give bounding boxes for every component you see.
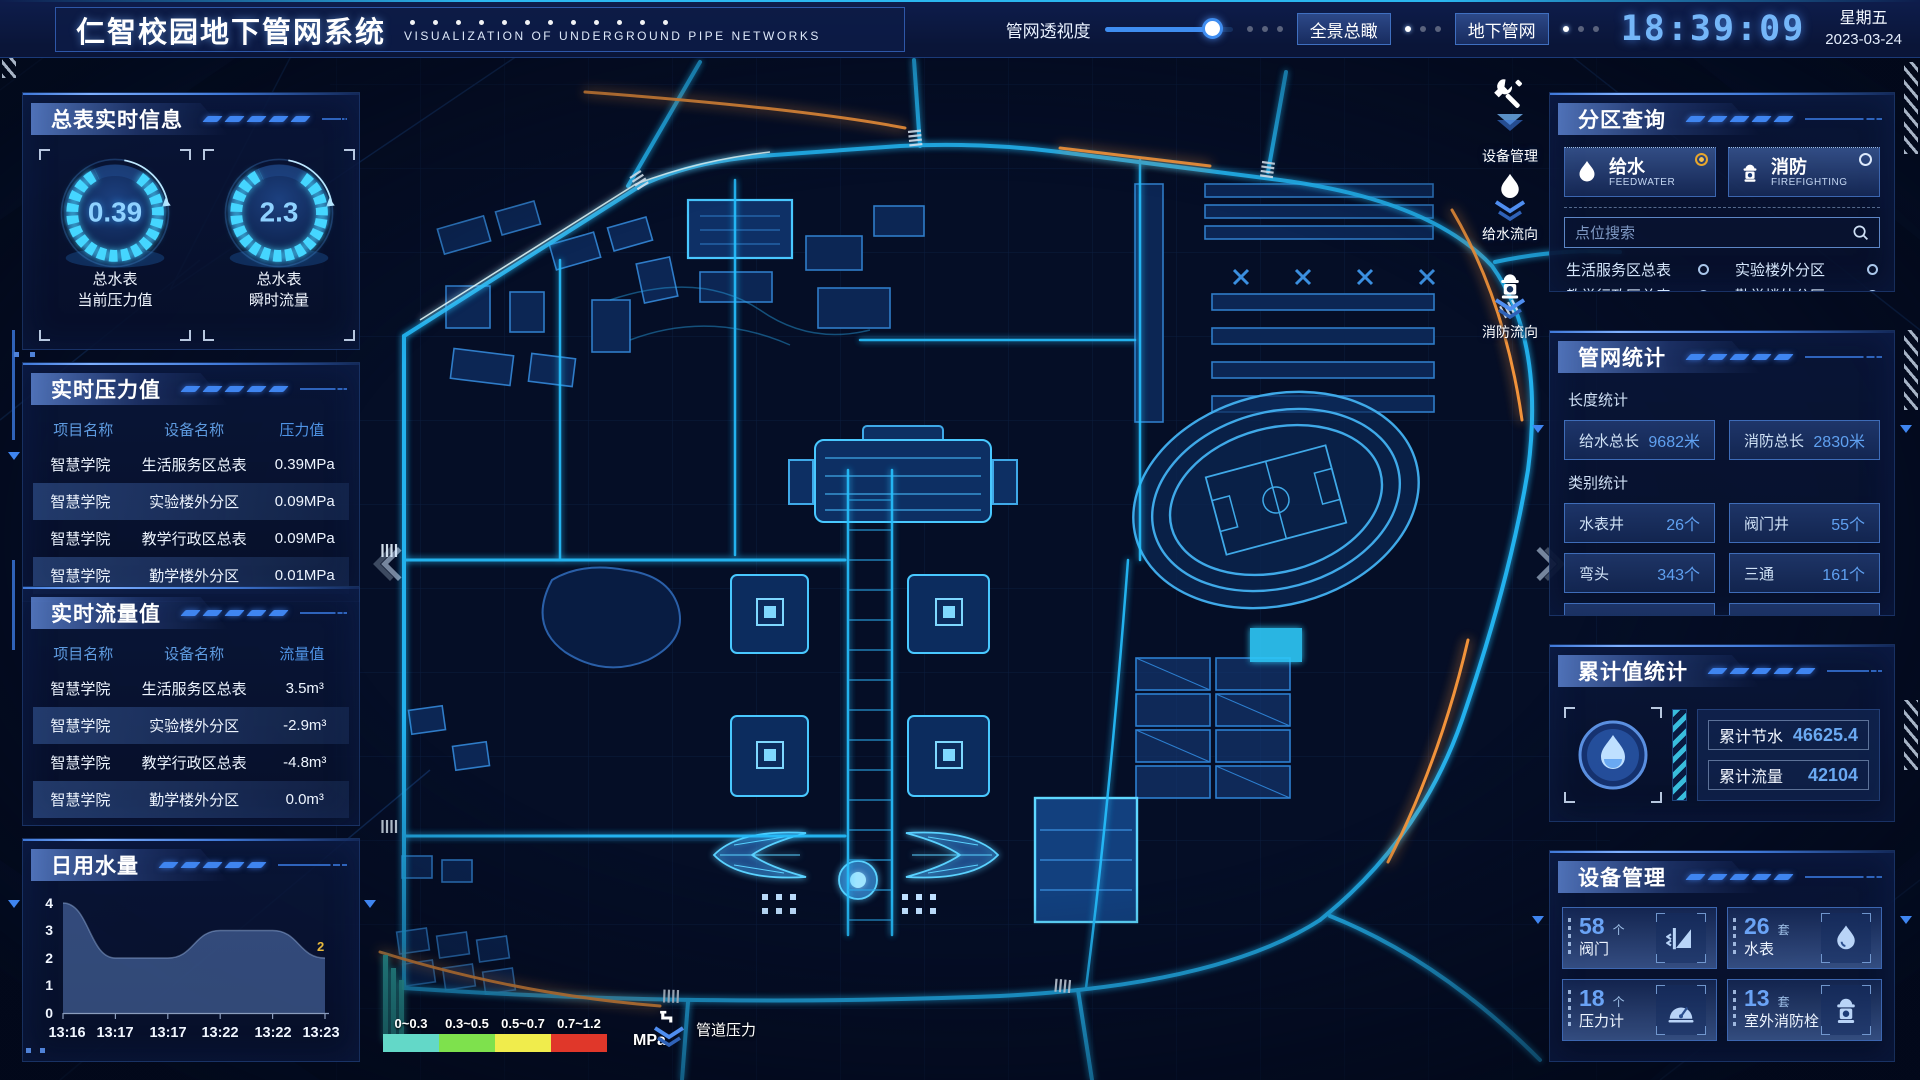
cumulative-values: 累计节水46625.4 累计流量42104 [1697,709,1880,801]
flow-table-header: 项目名称设备名称流量值 [33,637,349,670]
list-item[interactable]: 生活服务区总表 [1566,256,1709,282]
valve-icon [1656,913,1706,963]
dots-decor [1247,26,1283,32]
gauge-card-flow: 2.3 总水表瞬时流量 [203,149,355,341]
pressure-gauge-icon [1656,985,1706,1035]
hydrant-icon [1739,160,1761,184]
list-item[interactable]: 教学行政区总表 [1566,282,1709,292]
app-title-box: 仁智校园地下管网系统 VISUALIZATION OF UNDERGROUND … [55,7,905,52]
edge-hatch-decor [1904,62,1918,154]
device-card-pressure-gauges[interactable]: 18个 压力计 [1562,979,1717,1041]
stat-meter-wells: 水表井26个 [1564,503,1715,543]
daily-usage-chart: 4 3 2 1 0 13:16 13:17 13:17 13:22 13:22 … [23,885,359,1051]
weekday: 星期五 [1825,9,1902,30]
table-row[interactable]: 智慧学院实验楼外分区0.09MPa [33,483,349,520]
pipe-opacity-slider[interactable] [1105,19,1233,39]
stat-elbows: 弯头343个 [1564,553,1715,593]
dots-decor [1405,26,1441,32]
radio-unselected-icon[interactable] [1867,264,1878,275]
hatch-divider [1672,709,1687,801]
pipe-pressure-label: 管道压力 [696,1019,756,1040]
meter-panel: 总表实时信息 0.39 [22,92,360,350]
table-row[interactable]: 智慧学院生活服务区总表0.39MPa [33,446,349,483]
slashes-decor [183,610,286,616]
hydrant-icon [1495,270,1525,300]
flow-gauge-dial: 2.3 [203,153,355,273]
chevron-down-icon [1493,200,1527,222]
dashboard-root: 仁智校园地下管网系统 VISUALIZATION OF UNDERGROUND … [0,0,1920,1080]
table-row[interactable]: 智慧学院勤学楼外分区0.0m³ [33,781,349,818]
panel-title: 累计值统计 [1558,656,1688,686]
slashes-decor [161,862,264,868]
square-dot-decor [30,352,35,357]
scroll-track[interactable] [12,560,15,650]
water-drop-icon [1575,160,1599,184]
panel-title: 实时压力值 [31,374,161,404]
stat-feedwater-length: 给水总长9682米 [1564,420,1715,460]
radio-unselected-icon[interactable] [1698,290,1709,293]
radio-unselected-icon[interactable] [1859,153,1872,166]
device-card-water-meters[interactable]: 26套 水表 [1727,907,1882,969]
svg-text:2: 2 [45,950,53,966]
cumulative-flow: 累计流量42104 [1708,760,1869,790]
overview-button[interactable]: 全景总瞰 [1297,13,1391,45]
daily-usage-panel: 日用水量 4 3 2 1 0 1 [22,838,360,1062]
legend-color [383,1034,439,1052]
panel-title: 设备管理 [1558,862,1666,892]
table-row[interactable]: 智慧学院实验楼外分区-2.9m³ [33,707,349,744]
scroll-arrow[interactable] [1900,425,1912,433]
pipe-stats-panel: 管网统计 长度统计 给水总长9682米 消防总长2830米 类别统计 水表井26… [1549,330,1895,616]
slashes-decor [1710,668,1813,674]
radio-unselected-icon[interactable] [1867,290,1878,293]
scroll-arrow[interactable] [8,452,20,460]
panel-title: 管网统计 [1558,342,1666,372]
length-stats-label: 长度统计 [1550,377,1894,410]
slashes-decor [183,386,286,392]
scroll-arrow[interactable] [1532,916,1544,924]
scroll-arrow[interactable] [1900,916,1912,924]
edge-hatch-decor [1904,330,1918,410]
pressure-gauge-dial: 0.39 [39,153,191,273]
date: 2023-03-24 [1825,30,1902,50]
clock: 18:39:09 [1621,9,1806,49]
wrench-icon [1491,76,1529,114]
svg-text:13:22: 13:22 [254,1025,291,1041]
pipe-opacity-label: 管网透视度 [1006,17,1091,42]
gauge-card-pressure: 0.39 总水表当前压力值 [39,149,191,341]
cumulative-water-saved: 累计节水46625.4 [1708,720,1869,750]
layer-diamond-icon [1497,120,1523,144]
pressure-table-rows: 智慧学院生活服务区总表0.39MPa 智慧学院实验楼外分区0.09MPa 智慧学… [33,446,349,602]
svg-text:13:17: 13:17 [96,1025,133,1041]
table-row[interactable]: 智慧学院教学行政区总表-4.8m³ [33,744,349,781]
date-box: 星期五 2023-03-24 [1825,9,1902,49]
stat-clipped [1564,603,1715,616]
radio-unselected-icon[interactable] [1698,264,1709,275]
auditorium [789,426,1017,522]
square-dot-decor [26,1048,31,1053]
table-row[interactable]: 智慧学院生活服务区总表3.5m³ [33,670,349,707]
svg-text:13:23: 13:23 [302,1025,339,1041]
legend-color [495,1034,551,1052]
legend-color [551,1034,607,1052]
table-row[interactable]: 智慧学院砺学楼外分区2.2m³ [33,818,349,826]
panel-title: 实时流量值 [31,598,161,628]
stat-fire-length: 消防总长2830米 [1729,420,1880,460]
map-control-feedwater-flow[interactable]: 给水流向 [1478,172,1542,244]
point-search-input[interactable]: 点位搜索 [1564,217,1880,248]
search-placeholder: 点位搜索 [1575,222,1852,243]
water-drop-icon [1495,172,1525,202]
slashes-decor [1688,354,1791,360]
panel-title: 分区查询 [1558,104,1666,134]
stat-clipped [1729,603,1880,616]
pressure-table-header: 项目名称设备名称压力值 [33,413,349,446]
flow-panel: 实时流量值 项目名称设备名称流量值 智慧学院生活服务区总表3.5m³ 智慧学院实… [22,586,360,826]
svg-text:2.3: 2.3 [260,197,299,228]
svg-text:0: 0 [45,1005,53,1021]
tab-firefighting[interactable]: 消防FIREFIGHTING [1728,147,1880,197]
flow-table-rows: 智慧学院生活服务区总表3.5m³ 智慧学院实验楼外分区-2.9m³ 智慧学院教学… [33,670,349,826]
svg-text:3: 3 [45,922,53,938]
device-card-valves[interactable]: 58个 阀门 [1562,907,1717,969]
device-card-hydrants[interactable]: 13套 室外消防栓 [1727,979,1882,1041]
scroll-arrow[interactable] [8,900,20,908]
square-dot-decor [40,1048,45,1053]
panel-title: 总表实时信息 [31,104,183,134]
zone-query-panel: 分区查询 给水FEEDWATER 消防FIREFIGHTING [1549,92,1895,292]
svg-text:1: 1 [45,977,53,993]
radio-selected-icon[interactable] [1695,153,1708,166]
cumulative-panel: 累计值统计 累计节水46625.4 累计流量42104 [1549,644,1895,822]
chevron-down-icon [652,1025,686,1049]
pressure-panel: 实时压力值 项目名称设备名称压力值 智慧学院生活服务区总表0.39MPa 智慧学… [22,362,360,602]
top-header: 仁智校园地下管网系统 VISUALIZATION OF UNDERGROUND … [0,0,1920,58]
app-subtitle: VISUALIZATION OF UNDERGROUND PIPE NETWOR… [404,29,821,43]
list-item[interactable]: 实验楼外分区 [1735,256,1878,282]
stat-valve-wells: 阀门井55个 [1729,503,1880,543]
gauge-label: 总水表瞬时流量 [203,269,355,311]
slider-thumb[interactable] [1202,18,1223,39]
edge-hatch-decor [1904,700,1918,770]
square-dot-decor [14,352,19,357]
scroll-arrow[interactable] [1532,425,1544,433]
pipe-pressure-legend: 0~0.3 0.3~0.5 0.5~0.7 0.7~1.2 MPa [383,1016,666,1052]
pipe-pressure-key: 管道压力 [652,1010,756,1049]
water-meter-icon [1821,913,1871,963]
map-control-device-mgmt[interactable]: 设备管理 [1478,76,1542,166]
legend-color [439,1034,495,1052]
chevron-down-icon [1493,298,1527,320]
pipe-icon [658,1010,680,1026]
stat-tees: 三通161个 [1729,553,1880,593]
map-control-fire-flow[interactable]: 消防流向 [1478,270,1542,342]
svg-text:13:16: 13:16 [48,1025,85,1041]
dots-decor [1563,26,1599,32]
table-row[interactable]: 智慧学院教学行政区总表0.09MPa [33,520,349,557]
slashes-decor [1688,116,1791,122]
category-stats-label: 类别统计 [1550,460,1894,493]
slashes-decor [205,116,308,122]
svg-text:0.39: 0.39 [88,197,142,228]
app-title: 仁智校园地下管网系统 [76,9,386,51]
gauge-label: 总水表当前压力值 [39,269,191,311]
title-dots-decor [404,20,821,25]
scroll-track[interactable] [12,330,15,440]
tab-feedwater[interactable]: 给水FEEDWATER [1564,147,1716,197]
outdoor-hydrant-icon [1821,985,1871,1035]
scroll-arrow[interactable] [364,900,376,908]
list-item[interactable]: 勤学楼外分区 [1735,282,1878,292]
slashes-decor [1688,874,1791,880]
svg-text:13:22: 13:22 [201,1025,238,1041]
search-icon[interactable] [1852,224,1869,241]
panel-title: 日用水量 [31,850,139,880]
svg-text:13:17: 13:17 [149,1025,186,1041]
device-mgmt-panel: 设备管理 58个 阀门 26套 水表 [1549,850,1895,1062]
underground-pipes-button[interactable]: 地下管网 [1455,13,1549,45]
svg-text:2: 2 [317,939,324,954]
water-saving-icon [1564,707,1662,803]
svg-text:4: 4 [45,895,53,911]
zone-list: 生活服务区总表 实验楼外分区 教学行政区总表 勤学楼外分区 砺学楼外分区 宿舍区… [1566,256,1878,292]
